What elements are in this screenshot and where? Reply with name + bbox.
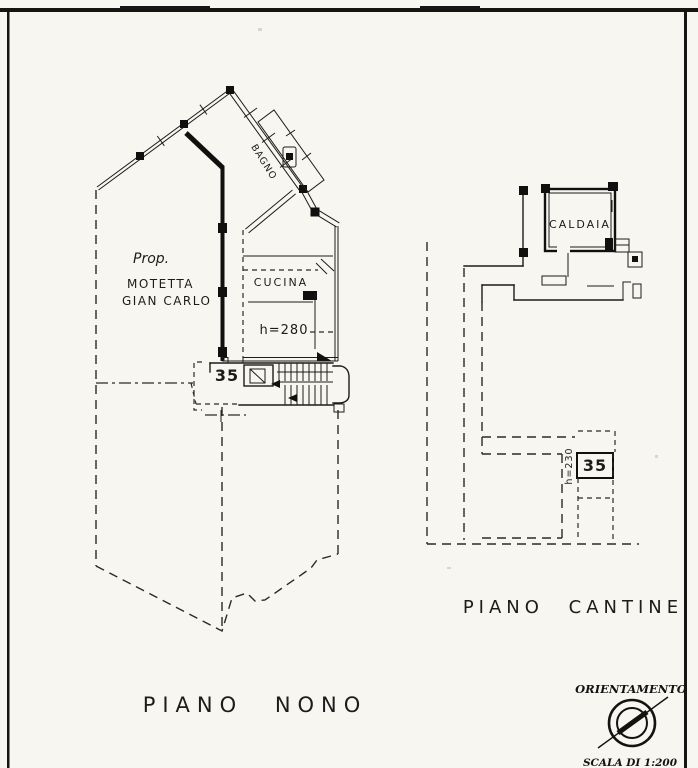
- terrace-edge-walls: [97, 89, 339, 228]
- height-note-280: h=280: [260, 323, 309, 338]
- owner-surname: MOTETTA: [127, 277, 194, 291]
- room-label-bagno: BAGNO: [248, 142, 278, 182]
- owner-prop: Prop.: [133, 251, 169, 267]
- unit-number-right: 35: [583, 456, 607, 475]
- plan-piano-cantine: CALDAIA 35 h=230: [427, 182, 683, 618]
- scan-noise: [258, 28, 658, 569]
- bagno-room: BAGNO: [248, 110, 324, 192]
- unit-number-left: 35: [215, 366, 239, 385]
- room-label-cucina: CUCINA: [254, 276, 308, 289]
- scanned-floorplan-sheet: BAGNO: [0, 0, 698, 768]
- caption-piano-nono: PIANO NONO: [143, 693, 368, 717]
- owner-name: GIAN CARLO: [122, 294, 211, 308]
- compass-icon: [598, 697, 668, 748]
- scale-label: SCALA DI 1:200: [583, 757, 678, 768]
- cantine-corridor-walls: [427, 186, 528, 544]
- height-note-230: h=230: [564, 447, 575, 484]
- owner-annotation: Prop. MOTETTA GIAN CARLO: [122, 251, 211, 308]
- plan-piano-nono: BAGNO: [96, 86, 367, 717]
- caldaia-room: CALDAIA: [541, 182, 642, 285]
- orientation-label: ORIENTAMENTO: [575, 682, 687, 696]
- floorplan-drawing: BAGNO: [0, 0, 698, 768]
- orientation-legend: ORIENTAMENTO SCALA DI 1:200: [575, 682, 687, 768]
- cellar-dashed-partitions: 35 h=230: [427, 302, 639, 544]
- cucina-room: CUCINA h=280: [243, 230, 334, 358]
- caption-piano-cantine: PIANO CANTINE: [463, 597, 683, 618]
- stairwell: 35: [194, 352, 349, 422]
- interior-diagonal-walls: [245, 190, 334, 274]
- room-label-caldaia: CALDAIA: [549, 218, 611, 231]
